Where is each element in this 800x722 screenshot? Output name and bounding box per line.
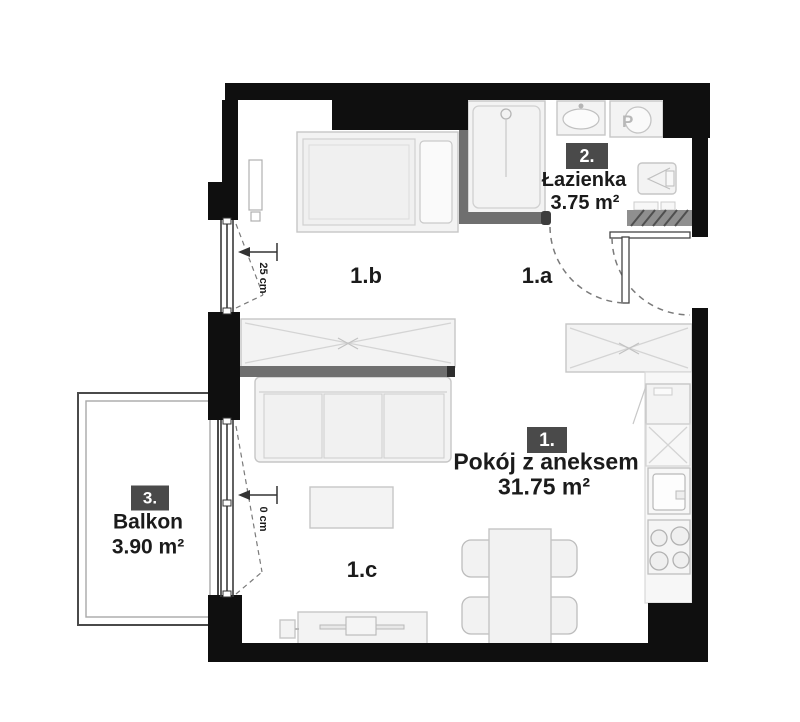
sofa bbox=[255, 377, 451, 462]
room-3-badge: 3. bbox=[131, 486, 169, 511]
speaker bbox=[280, 620, 299, 638]
floorplan-canvas: P bbox=[0, 0, 800, 722]
room-3-name: Balkon bbox=[113, 512, 183, 533]
bed bbox=[297, 132, 458, 232]
stove bbox=[648, 520, 690, 574]
dimension-arrow-balcony bbox=[238, 486, 277, 504]
room-3-area: 3.90 m² bbox=[112, 537, 184, 558]
zone-label-1b: 1.b bbox=[350, 265, 382, 287]
kitchen-sink bbox=[648, 468, 690, 514]
bathroom-sink bbox=[557, 101, 605, 135]
floorplan-drawing: P bbox=[0, 0, 800, 722]
dimension-label-0cm: 0 cm bbox=[257, 506, 269, 531]
washing-machine: P bbox=[610, 101, 663, 137]
room-1-name: Pokój z aneksem bbox=[453, 451, 638, 474]
shaft bbox=[627, 210, 692, 226]
room-1-area: 31.75 m² bbox=[498, 476, 590, 499]
zone-label-1a: 1.a bbox=[522, 265, 553, 287]
toilet bbox=[634, 163, 676, 210]
dimension-arrow-window bbox=[238, 243, 277, 261]
dining-table bbox=[489, 529, 551, 646]
room-2-badge: 2. bbox=[566, 143, 608, 169]
radiator bbox=[249, 160, 262, 221]
wardrobe bbox=[241, 319, 455, 367]
zone-label-1c: 1.c bbox=[347, 559, 378, 581]
kitchen-counter bbox=[633, 372, 692, 603]
room-divider bbox=[240, 366, 455, 377]
room-2-area: 3.75 m² bbox=[551, 193, 620, 213]
coffee-table bbox=[310, 487, 393, 528]
shower bbox=[468, 101, 545, 213]
washer-label: P bbox=[622, 112, 633, 131]
room-2-name: Łazienka bbox=[542, 170, 626, 190]
dimension-label-25cm: 25 cm bbox=[257, 262, 269, 293]
tv-stand bbox=[298, 612, 427, 645]
fridge bbox=[633, 384, 690, 424]
kitchen-upper-cabinet bbox=[566, 324, 692, 372]
